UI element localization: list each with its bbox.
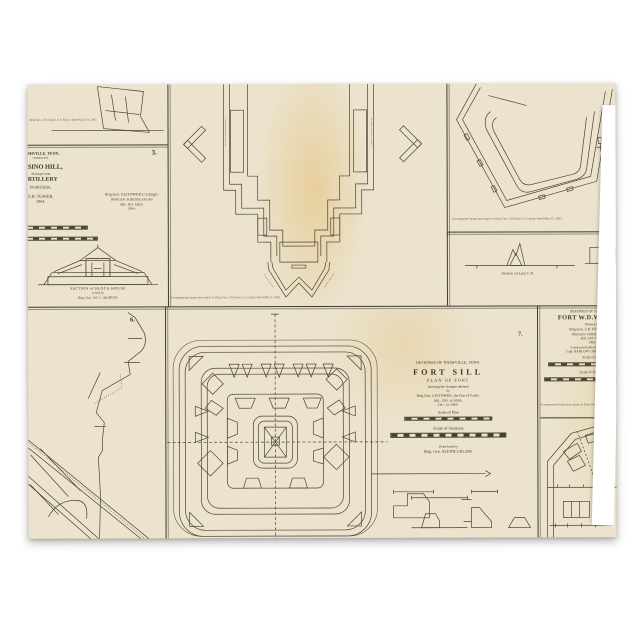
caption-line: Brig. Gen. JAS. C. MORTON. — [34, 295, 162, 300]
scale-bar — [27, 237, 97, 241]
product-photo: Brig.Gen. Z.B.Tower U.S.Army, dated Apri… — [0, 0, 644, 644]
map-fragment-drawing — [45, 84, 167, 142]
trench-map-drawing — [28, 306, 166, 538]
fragment-caption: Brig.Gen. Z.B.Tower U.S.Army, dated Apri… — [29, 118, 161, 122]
panel-divider — [28, 144, 168, 146]
title-line: POSITION. — [27, 184, 87, 190]
large-fort-plan-drawing — [167, 84, 447, 307]
scale-bar — [27, 226, 87, 230]
title-line: constructed. — [27, 156, 87, 161]
fort-subtitle: PLAN OF FORT — [380, 377, 516, 383]
fort-title: FORT SILL — [380, 366, 516, 377]
pentagon-fort-drawing — [446, 83, 615, 231]
region-label: DEFENSES OF NASHVILLE, TENN. — [380, 359, 516, 365]
built-by-name: Brig. Gen. ALEX'R GILLEM. — [380, 449, 516, 455]
greeting-card: Brig.Gen. Z.B.Tower U.S.Army, dated Apri… — [27, 83, 616, 539]
scale-bar — [404, 416, 492, 420]
scale-label: Scale of Plan — [380, 409, 516, 415]
title-line: CASINO HILL, — [27, 163, 87, 172]
blockhouse-section-drawing — [34, 244, 162, 288]
scale-bar — [390, 433, 506, 437]
section-profile-drawing — [447, 231, 616, 305]
scale-label: Scale of Sections — [380, 426, 516, 432]
date-label: Dec. 1st 1864. — [380, 403, 516, 408]
plate-number: 3. — [152, 148, 157, 156]
large-fort-caption: Accompanying Inspection report of Brig.G… — [170, 296, 370, 300]
section-label: Section on Line C-D. — [480, 271, 556, 276]
pentagon-fort-caption: Accompanied Inspection report of Brig.Ge… — [452, 217, 617, 221]
fort-sill-title-block: DEFENSES OF NASHVILLE, TENN. FORT SILL P… — [380, 359, 516, 454]
blockhouse-caption: SECTION of BLOCK-HOUSE as built by Brig.… — [34, 286, 162, 300]
